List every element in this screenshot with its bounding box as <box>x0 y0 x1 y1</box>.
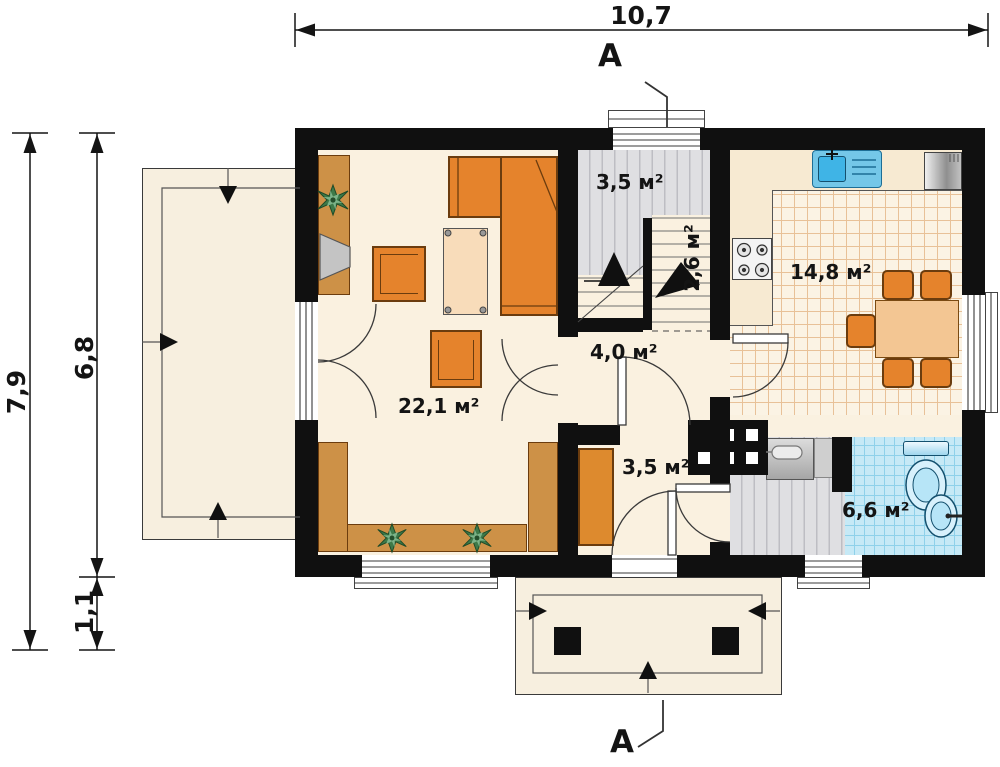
wall-under-stairs <box>578 318 643 332</box>
window-sill <box>797 577 870 589</box>
washing-machine <box>766 438 814 480</box>
floor-plan: 10,7 7,9 6,8 1,1 A A 22,1 м² 3,5 м² 2,6 … <box>0 0 1000 767</box>
window-sill <box>354 577 498 589</box>
wall <box>710 542 730 555</box>
dimension-height-porch: 1,1 <box>71 596 97 628</box>
chair <box>882 270 914 300</box>
wall <box>677 555 805 577</box>
room-label-vestibule: 3,5 м² <box>622 455 690 479</box>
window <box>805 555 862 577</box>
wardrobe <box>578 448 614 546</box>
dimension-height-total: 7,9 <box>3 376 29 408</box>
chair <box>920 270 952 300</box>
chimney-flue <box>746 429 758 441</box>
sideboard-left <box>318 442 348 552</box>
section-mark-top: A <box>588 38 632 74</box>
stove <box>732 238 772 280</box>
wall <box>558 148 578 337</box>
terrace <box>142 168 302 540</box>
room-label-living: 22,1 м² <box>398 394 479 418</box>
window-frame <box>985 292 998 413</box>
wall <box>490 555 612 577</box>
sideboard-bottom <box>347 524 527 552</box>
chair <box>882 358 914 388</box>
window-frame <box>608 110 705 128</box>
wall <box>700 128 985 150</box>
wall <box>558 423 578 555</box>
bathroom-stub-wall <box>832 437 852 492</box>
section-mark-bottom: A <box>600 724 644 760</box>
room-label-hall: 4,0 м² <box>590 340 658 364</box>
tv-cabinet <box>318 155 350 295</box>
chair <box>846 314 876 348</box>
wall <box>295 420 318 577</box>
toilet-tank <box>903 441 949 456</box>
coffee-table <box>443 228 488 315</box>
porch-column <box>712 627 739 655</box>
room-label-kitchen: 14,8 м² <box>790 260 871 284</box>
porch-column <box>554 627 581 655</box>
chair <box>920 358 952 388</box>
wall <box>710 148 730 340</box>
room-label-stairs: 3,5 м² <box>596 170 664 194</box>
room-label-bathroom: 6,6 м² <box>842 498 910 522</box>
chimney-flue <box>746 452 758 464</box>
window <box>962 295 985 410</box>
wall <box>295 128 318 302</box>
wall <box>578 425 620 445</box>
wall <box>962 128 985 295</box>
chimney-flue <box>698 452 710 464</box>
wall <box>688 425 710 445</box>
fridge <box>924 152 962 190</box>
dimension-height-house: 6,8 <box>71 342 97 374</box>
wall <box>295 128 613 150</box>
armchair-seat <box>380 254 418 294</box>
armchair-seat <box>438 340 474 380</box>
sofa-section-side <box>500 156 558 316</box>
sideboard-right <box>528 442 558 552</box>
stair-divider-wall <box>643 218 652 330</box>
dining-table <box>875 300 959 358</box>
entrance-door-opening <box>612 555 677 577</box>
dimension-width-top: 10,7 <box>581 1 701 29</box>
wall <box>710 397 730 487</box>
room-label-stairs-lower: 2,6 м² <box>680 216 704 300</box>
dimension-line-left-split <box>79 133 115 650</box>
window <box>613 128 700 150</box>
terrace-door-opening <box>295 302 318 420</box>
window <box>362 555 490 577</box>
wall <box>962 410 985 577</box>
sink-basin <box>818 156 846 182</box>
